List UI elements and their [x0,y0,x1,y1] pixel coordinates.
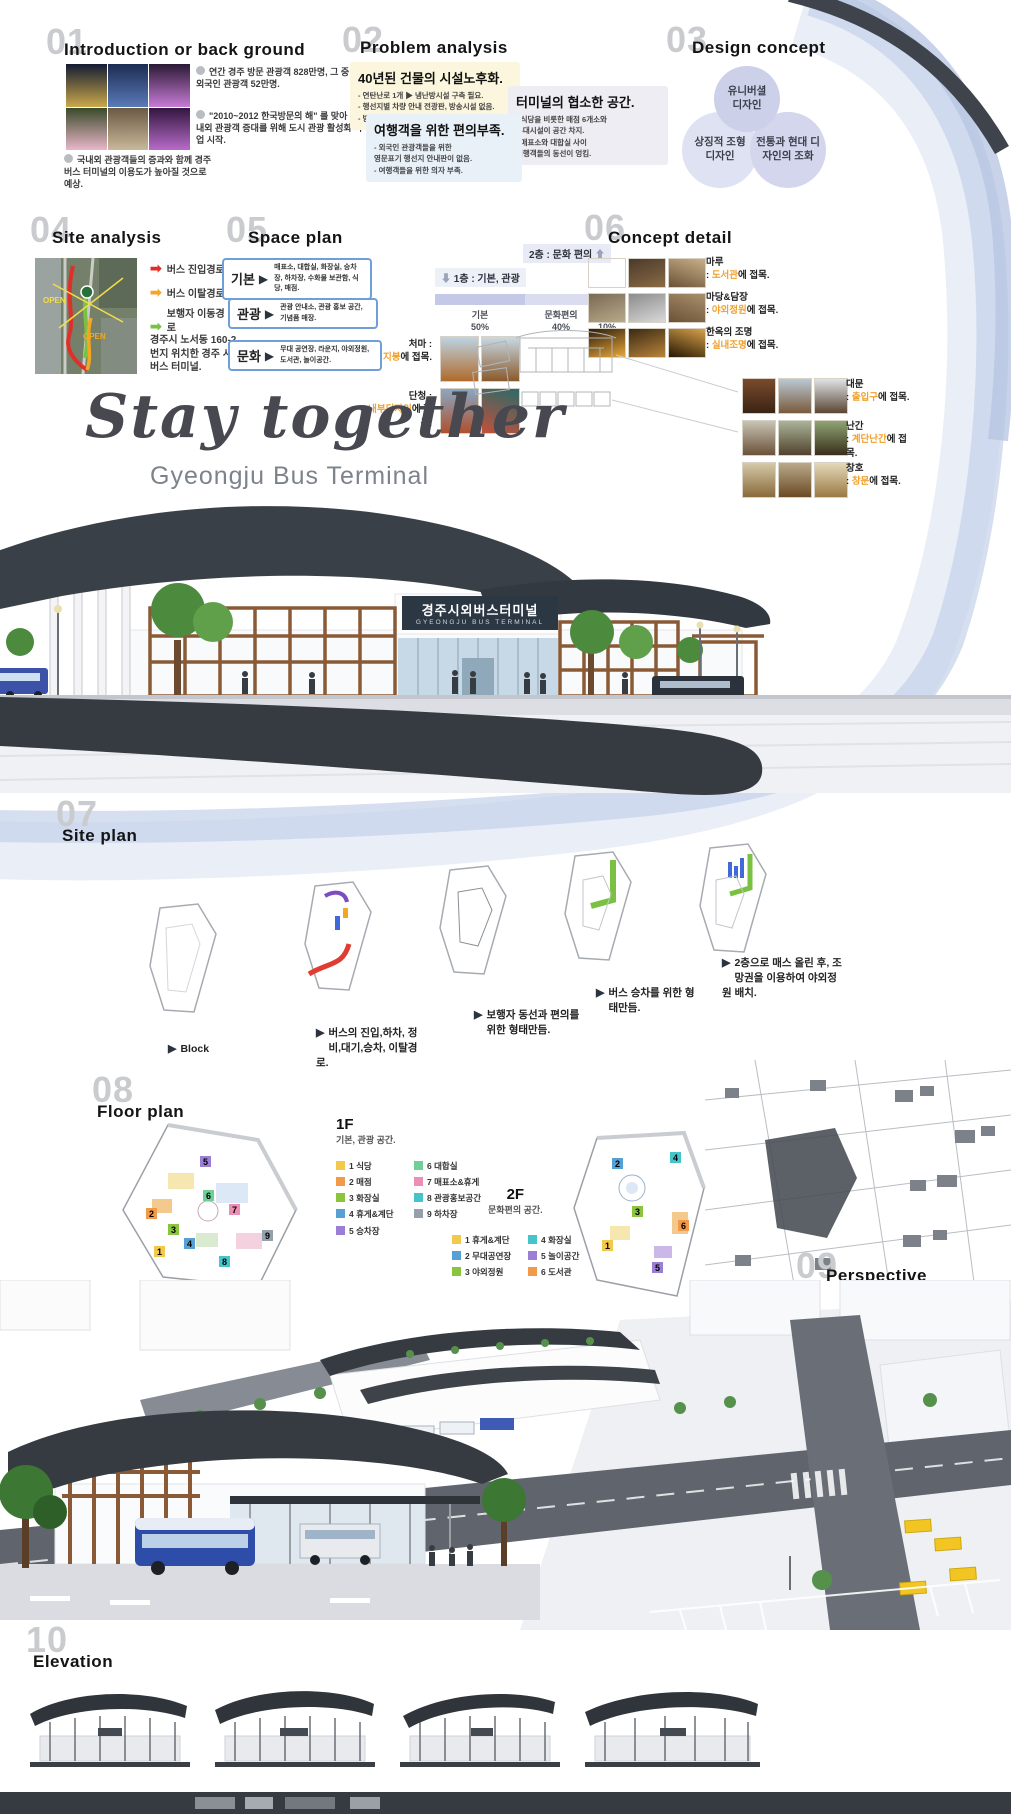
problem-line: 여행객들의 동선이 엉킴. [516,148,660,159]
bus-entry-arrow-icon: ➡ [150,260,162,276]
section-04-title: Site analysis [52,228,162,248]
problem-line: - 연탄난로 1개 ▶ 냉난방시설 구축 필요. [358,90,512,101]
site-map-image: OPEN OPEN [35,258,137,374]
elevation-drawing-3 [395,1676,565,1776]
step-caption-3: ▶보행자 동선과 편의를 위한 형태만듬. [474,1008,584,1038]
space-row-basic: 기본 ▶ 매표소, 대합실, 화장실, 승차장, 하차장, 수화물 보관함, 식… [222,258,372,300]
concept-photo-strip [742,420,848,456]
legend-label: 보행자 이동경로 [167,308,227,335]
concept-photo-strip [742,378,848,414]
floor-plan-1f-drawing: 1 2 3 4 5 6 7 8 9 [108,1115,318,1305]
floor-2f-legend-col1: 1 휴게&계단 2 무대공연장 3 야외정원 [452,1232,511,1280]
chevron-icon: ▶ [596,986,604,1002]
terminal-front-render [0,490,1011,810]
bus-exit-arrow-icon: ➡ [150,284,162,300]
legend-chip [452,1267,461,1276]
intro-photo-collage [66,64,190,150]
svg-text:7: 7 [232,1205,237,1215]
space-key: 관광 [237,304,261,323]
problem-line: 부대시설이 공간 차지. [516,125,660,136]
svg-text:5: 5 [203,1157,208,1167]
problem-box-convenience: 여행객을 위한 편의부족. - 외국인 관광객들을 위한 영문표기 행선지 안내… [366,114,522,182]
space-row-culture: 문화 ▶ 무대 공연장, 라운지, 야외정원, 도서관, 놀이공간. [228,340,382,371]
svg-text:1: 1 [605,1241,610,1251]
concept-photo-strip [588,293,706,323]
space-chart: 2층 : 문화 편의 ⬆ ⬇ 1층 : 기본, 관광 기본50% 문화편의40%… [435,242,617,338]
floor-1f-sub: 기본, 관광 공간. [336,1134,396,1146]
note-dot-icon [196,110,205,119]
photo-tile [66,64,107,107]
section-05-title: Space plan [248,228,343,248]
legend-chip [336,1226,345,1235]
chevron-icon: ▶ [265,349,274,363]
problem-line: - 여행객들을 위한 의자 부족. [374,165,514,176]
svg-text:3: 3 [635,1207,640,1217]
concept-item-daemun: 대문 : 출입구에 접목. [846,378,916,405]
space-desc: 무대 공연장, 라운지, 야외정원, 도서관, 놀이공간. [280,345,373,366]
svg-text:6: 6 [206,1191,211,1201]
problem-box-space: 터미널의 협소한 공간. - 식당을 비롯한 매점 6개소와 부대시설이 공간 … [508,86,668,165]
legend-label: 버스 이탈경로 [167,289,225,300]
step-diagram-2 [305,882,371,990]
chevron-icon: ▶ [316,1026,324,1042]
concept-item-nangan: 난간 : 계단난간에 접목. [846,420,916,460]
chevron-icon: ▶ [474,1008,482,1024]
site-legend: ➡버스 진입경로 ➡버스 이탈경로 ➡보행자 이동경로 [150,260,227,336]
step-caption-4: ▶버스 승차를 위한 형태만듬. [596,986,696,1016]
space-desc: 매표소, 대합실, 화장실, 승차장, 하차장, 수화물 보관함, 식당, 매점… [274,263,363,295]
bar-segment-basic [435,294,525,305]
floor-2f-label: 2F [507,1186,525,1203]
chevron-icon: ▶ [722,956,730,972]
floor-1f-label: 1F [336,1116,354,1133]
terminal-sign-ko: 경주시외버스터미널 [402,600,558,619]
problem-line: 영문표기 행선지 안내판이 없음. [374,153,514,164]
floor-2f-sub: 문화편의 공간. [488,1204,543,1216]
step-diagram-3 [440,866,506,974]
legend-label: 버스 진입경로 [167,265,225,276]
section-06-title: Concept detail [608,228,732,248]
concept-photo-strip [588,258,706,288]
step-caption-1: ▶Block [168,1042,248,1058]
problem-box-title: 40년된 건물의 시설노후화. [358,68,512,87]
elevation-drawing-4 [580,1676,765,1776]
space-key: 문화 [237,346,261,365]
step-diagram-4 [565,852,631,960]
note-dot-icon [64,154,73,163]
poster-root: 01 Introduction or back ground 연간 경주 방문 … [0,0,1011,1814]
chevron-icon: ▶ [259,272,268,286]
problem-line: - 식당을 비롯한 매점 6개소와 [516,114,660,125]
legend-chip [452,1251,461,1260]
intro-note-2: "2010~2012 한국방문의 해" 를 맞아 국내외 관광객 증대를 위해 … [196,110,366,146]
map-open-label: OPEN [43,296,66,305]
photo-tile [108,108,149,151]
section-10-title: Elevation [33,1652,113,1672]
svg-text:4: 4 [673,1153,678,1163]
step-caption-2: ▶버스의 진입,하차, 정비,대기,승차, 이탈경로. [316,1026,426,1072]
concept-circle-universal: 유니버셜 디자인 [714,66,780,132]
concept-item-maru: 마루 : 도서관에 접목. [706,256,796,283]
map-open-label: OPEN [83,332,106,341]
svg-text:9: 9 [265,1231,270,1241]
floor1-strip: ⬇ 1층 : 기본, 관광 [435,268,526,287]
svg-text:6: 6 [681,1221,686,1231]
concept-item-changho: 창호 : 창문에 접목. [846,462,916,489]
problem-box-title: 여행객을 위한 편의부족. [374,120,514,139]
terminal-sign-en: GYEONGJU BUS TERMINAL [402,619,558,626]
svg-text:1: 1 [157,1247,162,1257]
space-key: 기본 [231,269,255,288]
pedestrian-arrow-icon: ➡ [150,318,162,334]
intro-note-3: 국내외 관광객들의 증과와 함께 경주 버스 터미널의 이용도가 높아질 것으로… [64,154,214,190]
elevation-drawing-2 [210,1676,380,1776]
bar-segment-culture [525,294,597,305]
svg-text:3: 3 [171,1225,176,1235]
photo-tile [149,64,190,107]
down-arrow-icon: ⬇ [441,274,451,285]
legend-chip [528,1267,537,1276]
city-map-sketch [705,1060,1011,1290]
section-03-title: Design concept [692,38,826,58]
legend-chip [414,1161,423,1170]
floor-1f-legend-col1: 1 식당 2 매점 3 화장실 4 휴게&계단 5 승차장 [336,1158,394,1239]
svg-text:4: 4 [187,1239,192,1249]
problem-line: - 외국인 관광객들을 위한 [374,142,514,153]
svg-text:2: 2 [615,1159,620,1169]
section-07-title: Site plan [62,826,137,846]
chevron-icon: ▶ [168,1042,176,1058]
poster-title: Stay together [85,382,566,452]
site-block [765,1128,857,1238]
legend-chip [336,1193,345,1202]
bottom-bar [0,1792,1011,1814]
legend-chip [336,1209,345,1218]
photo-tile [108,64,149,107]
section-01-title: Introduction or back ground [64,40,305,60]
terminal-sign: 경주시외버스터미널 GYEONGJU BUS TERMINAL [402,596,558,630]
legend-chip [336,1177,345,1186]
legend-chip [336,1161,345,1170]
street-render [0,1400,540,1620]
legend-chip [414,1193,423,1202]
step-diagram-5 [700,844,766,952]
floor-1f-legend-col2: 6 대합실 7 매표소&휴게 8 관광홍보공간 9 하차장 [414,1158,481,1223]
legend-chip [528,1251,537,1260]
poster-subtitle: Gyeongju Bus Terminal [150,462,429,491]
concept-item-cheoma: 처마 : 지붕에 접목. [370,338,432,365]
legend-chip [414,1177,423,1186]
photo-tile [149,108,190,151]
legend-chip [414,1209,423,1218]
note-dot-icon [196,66,205,75]
floor-1f-header: 1F 기본, 관광 공간. [336,1116,396,1146]
step-diagram-1 [150,904,216,1012]
legend-chip [452,1235,461,1244]
chevron-icon: ▶ [265,307,274,321]
problem-line: - 매표소와 대합실 사이 [516,137,660,148]
legend-chip [528,1235,537,1244]
space-row-tour: 관광 ▶ 관광 안내소, 관광 홍보 공간, 기념품 매장. [228,298,378,329]
step-caption-5: ▶2층으로 매스 올린 후, 조망권을 이용하여 야외정원 배치. [722,956,842,1002]
section-02-title: Problem analysis [360,38,508,58]
photo-tile [66,108,107,151]
svg-text:2: 2 [149,1209,154,1219]
problem-line: - 행선지별 차량 안내 전광판, 방송시설 없음. [358,101,512,112]
concept-item-madang: 마당&담장 : 야외정원에 접목. [706,291,796,318]
problem-box-title: 터미널의 협소한 공간. [516,92,660,111]
intro-note-1: 연간 경주 방문 관광객 828만명, 그 중 외국인 관광객 52만명. [196,66,356,90]
svg-text:8: 8 [222,1257,227,1267]
space-desc: 관광 안내소, 관광 홍보 공간, 기념품 매장. [280,303,369,324]
floor-2f-header: 2F 문화편의 공간. [488,1186,543,1216]
svg-text:5: 5 [655,1263,660,1273]
elevation-drawing-1 [25,1676,195,1776]
